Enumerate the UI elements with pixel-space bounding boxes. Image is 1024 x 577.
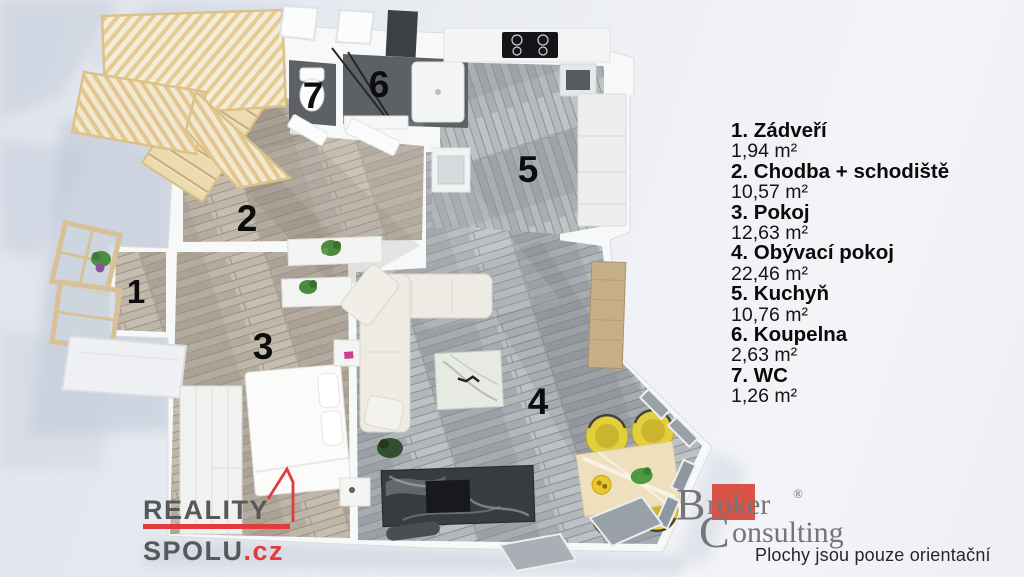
reality-spolu-logo: REALITY SPOLU.cz (143, 497, 308, 567)
logo-word-spolu-text: SPOLU (143, 536, 244, 566)
legend-room-area: 12,63 m² (731, 223, 997, 243)
legend-room-name: 5. Kuchyň (731, 284, 997, 304)
legend-room-name: 4. Obývací pokoj (731, 243, 997, 263)
room-number-1: 1 (127, 273, 145, 310)
plant-leaves (333, 241, 341, 249)
legend-room-area: 10,76 m² (731, 305, 997, 325)
nightstand (340, 478, 370, 506)
plant-leaves (322, 248, 329, 255)
nightstand-decor (344, 351, 354, 359)
disclaimer-text: Plochy jsou pouze orientační (755, 545, 991, 566)
legend-room-name: 3. Pokoj (731, 203, 997, 223)
room-number-2: 2 (237, 198, 258, 239)
kitchen-cabinets-right (578, 94, 626, 226)
cooktop (502, 32, 558, 58)
skylight (336, 10, 374, 44)
skylight (280, 6, 318, 40)
room-number-6: 6 (369, 64, 390, 105)
pillow (321, 410, 344, 446)
nightstand-decor (349, 487, 355, 493)
legend-room-name: 6. Koupelna (731, 325, 997, 345)
room-number-5: 5 (518, 149, 539, 190)
legend-room-area: 10,57 m² (731, 182, 997, 202)
logo-word-spolu: SPOLU.cz (143, 538, 308, 565)
plant-pot (96, 264, 105, 273)
sideboard-wood (588, 261, 626, 368)
logo-initial-c: C (699, 509, 730, 555)
logo-tld: .cz (244, 536, 285, 566)
sink (438, 156, 464, 184)
logo-word-reality: REALITY (143, 497, 308, 524)
logo-word-consulting: onsulting (732, 518, 844, 548)
marble-counter (381, 465, 535, 526)
plant-leaves (379, 439, 389, 449)
legend-room-name: 7. WC (731, 366, 997, 386)
registered-mark-icon: ® (793, 487, 803, 500)
pillow (317, 373, 340, 409)
plant-leaves (309, 280, 317, 288)
shower-drain (435, 89, 441, 95)
counter-hob (425, 480, 470, 514)
room-number-4: 4 (528, 381, 549, 422)
legend-room-name: 2. Chodba + schodiště (731, 162, 997, 182)
floor-plan-image: 1 2 3 4 5 6 7 1. Zádveří 1,94 m² 2. Chod… (0, 0, 1024, 577)
plant-leaves (92, 252, 100, 260)
legend-room-area: 1,26 m² (731, 386, 997, 406)
legend-room-area: 1,94 m² (731, 141, 997, 161)
wall-panel (386, 10, 418, 58)
canopy (62, 336, 186, 398)
legend-room-area: 22,46 m² (731, 264, 997, 284)
fridge-interior (566, 70, 590, 90)
room-number-3: 3 (253, 326, 274, 367)
legend-room-area: 2,63 m² (731, 345, 997, 365)
legend-room-name: 1. Zádveří (731, 121, 997, 141)
room-number-7: 7 (303, 75, 324, 116)
room-legend: 1. Zádveří 1,94 m² 2. Chodba + schodiště… (731, 121, 997, 407)
